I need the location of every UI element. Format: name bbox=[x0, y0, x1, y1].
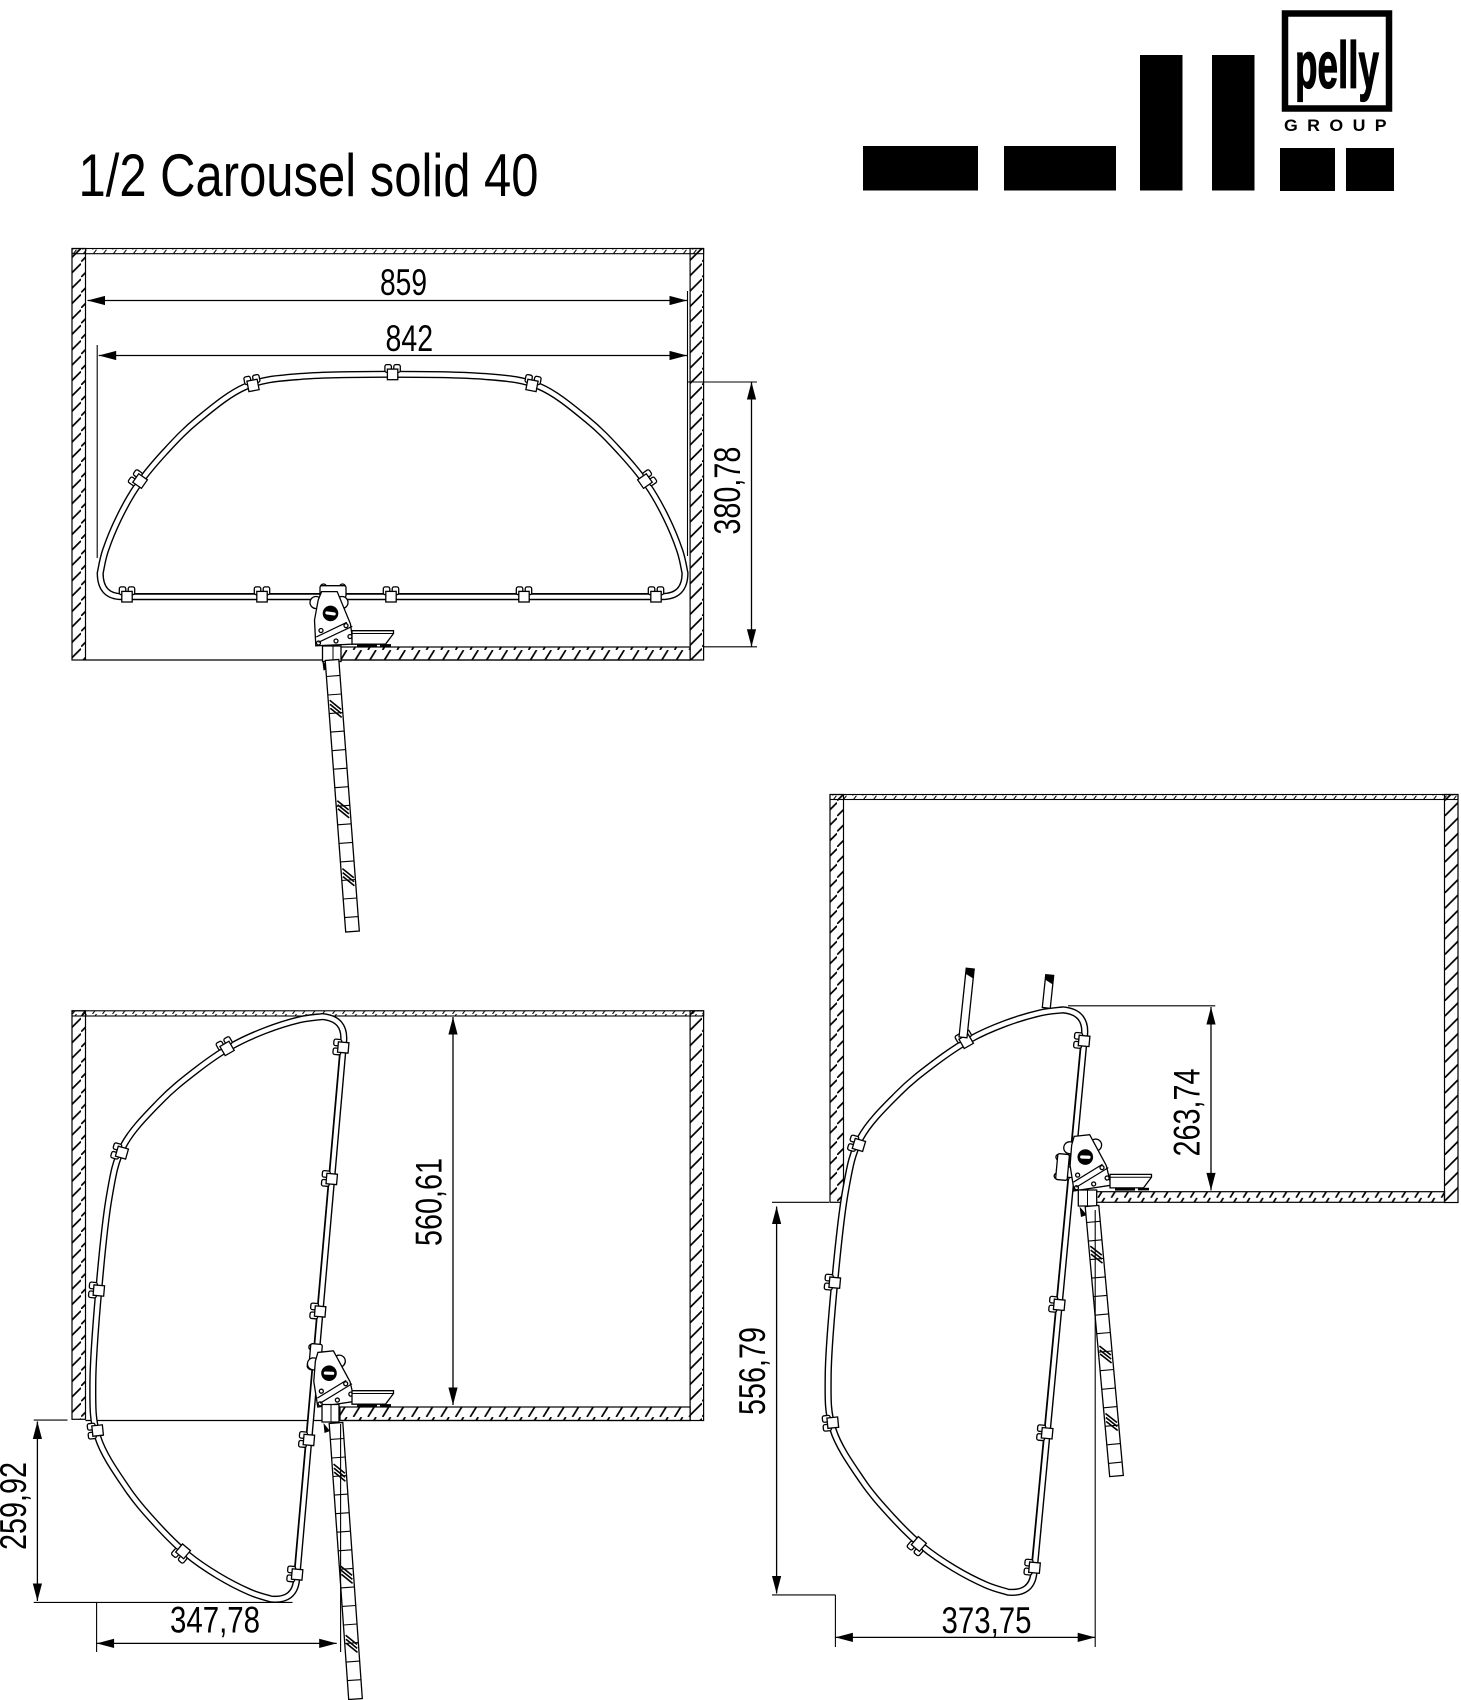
svg-text:GROUP: GROUP bbox=[1284, 116, 1396, 135]
svg-text:556,79: 556,79 bbox=[732, 1327, 773, 1415]
svg-text:1/2 Carousel solid 40: 1/2 Carousel solid 40 bbox=[79, 142, 539, 209]
svg-text:259,92: 259,92 bbox=[0, 1462, 34, 1550]
svg-text:263,74: 263,74 bbox=[1167, 1069, 1208, 1157]
svg-text:842: 842 bbox=[386, 318, 434, 359]
svg-text:560,61: 560,61 bbox=[409, 1158, 450, 1246]
svg-text:373,75: 373,75 bbox=[942, 1600, 1032, 1641]
svg-text:347,78: 347,78 bbox=[170, 1600, 260, 1641]
svg-text:380,78: 380,78 bbox=[707, 447, 748, 535]
svg-text:859: 859 bbox=[380, 262, 427, 303]
svg-text:pelly: pelly bbox=[1295, 28, 1379, 102]
